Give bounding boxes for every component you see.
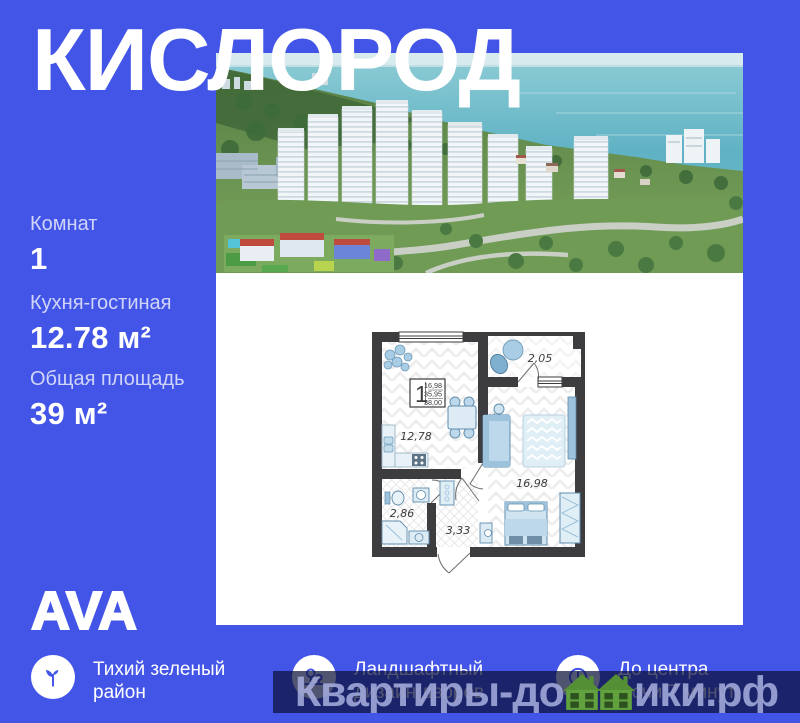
watermark-house-icons [565,674,633,710]
ava-logo: AVA [31,580,137,642]
feature-quiet-district: Тихий зеленый район [31,655,228,704]
label-hallway: 3,33 [446,524,471,537]
stat-total-area: Общая площадь 39 м² [30,368,185,432]
sprout-icon [31,655,75,699]
house-icon [597,674,635,710]
page-title: КИСЛОРОД [32,16,520,104]
label-bathroom: 2,86 [390,507,415,520]
stat-rooms-value: 1 [30,241,97,277]
stat-total-area-label: Общая площадь [30,368,185,391]
watermark-text-right: ики.рф [634,671,778,713]
stat-kitchen-label: Кухня-гостиная [30,292,172,315]
watermark-text-left: Квартиры-до [295,671,564,713]
stat-kitchen: Кухня-гостиная 12.78 м² [30,292,172,356]
stat-rooms: Комнат 1 [30,213,97,277]
watermark-bar: Квартиры-до ики.рф [273,671,800,713]
label-living: 16,98 [516,477,548,490]
legend-area-3: 38,00 [424,398,442,407]
stat-rooms-label: Комнат [30,213,97,236]
label-balcony: 2,05 [528,352,553,365]
floor-plan-panel: 1 16,98 35,95 38,00 [216,273,743,625]
kindergarten [224,233,394,273]
stat-kitchen-value: 12.78 м² [30,320,172,356]
plan-legend: 1 16,98 35,95 38,00 [410,379,445,407]
house-icon [563,674,601,710]
stat-total-area-value: 39 м² [30,396,185,432]
feature-quiet-district-label: Тихий зеленый район [93,658,228,704]
label-kitchen: 12,78 [400,430,432,443]
